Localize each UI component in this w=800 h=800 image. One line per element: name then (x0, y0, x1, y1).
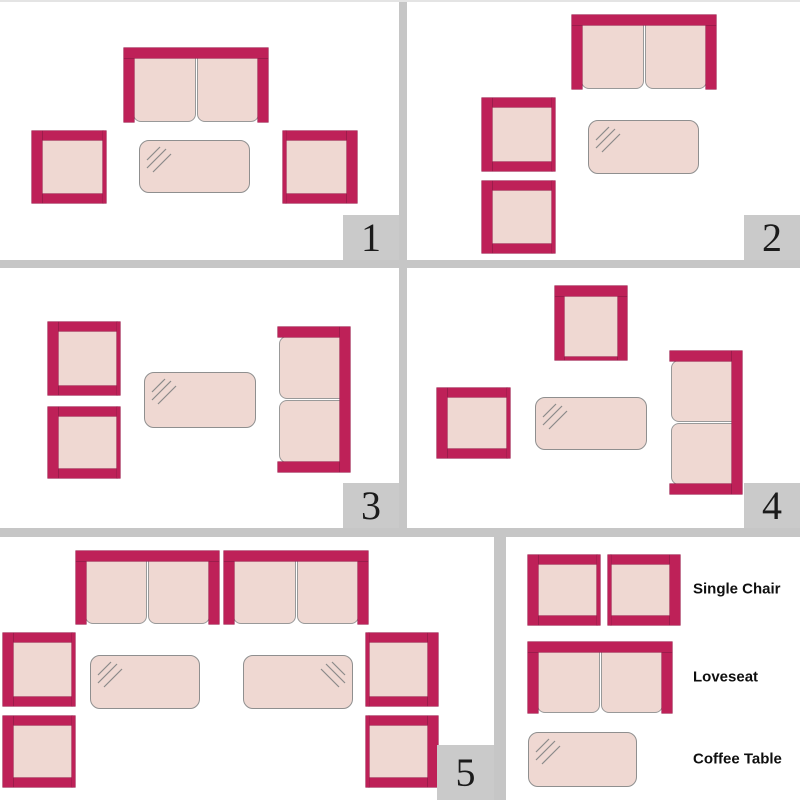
chair-front-edge (552, 181, 555, 253)
chair-arm (448, 449, 507, 458)
chair-arm (59, 407, 117, 416)
loveseat-arm (278, 462, 339, 472)
chair-front-edge (366, 716, 369, 787)
chair-front-edge (72, 716, 75, 787)
chair-arm (14, 697, 72, 706)
panel-number-badge: 2 (744, 215, 800, 260)
loveseat-arm (670, 484, 731, 494)
single-chair (555, 286, 627, 360)
separator (0, 260, 800, 268)
chair-back (528, 555, 538, 625)
chair-arm (611, 555, 669, 564)
single-chair (283, 131, 357, 203)
chair-front-edge (608, 555, 611, 625)
panel-number: 4 (762, 486, 782, 526)
single-chair (608, 555, 680, 625)
chair-front-edge (72, 633, 75, 706)
top-edge-line (0, 0, 800, 2)
loveseat-back (224, 551, 368, 561)
chair-arm (14, 716, 72, 725)
seat-cushion (368, 640, 430, 699)
chair-arm (369, 633, 427, 642)
loveseat (76, 551, 219, 624)
seat-cushion (56, 414, 118, 471)
single-chair (3, 633, 75, 706)
legend-label-single-chair: Single Chair (693, 581, 781, 598)
panel-number: 3 (361, 486, 381, 526)
chair-back (32, 131, 42, 203)
chair-arm (369, 697, 427, 706)
loveseat-arm (358, 562, 368, 624)
loveseat (528, 642, 672, 713)
separator (399, 0, 407, 260)
chair-front-edge (103, 131, 106, 203)
single-chair (48, 407, 120, 478)
furniture-layout-diagram: 1 2 3 4 5 Single Chair Loveseat Coffee T… (0, 0, 800, 800)
loveseat-arm (528, 653, 538, 713)
loveseat-arm (258, 59, 268, 122)
coffee-table (90, 655, 200, 709)
seat-cushion (285, 138, 349, 196)
single-chair (32, 131, 106, 203)
panel-number: 5 (456, 753, 476, 793)
panel-number-badge: 3 (343, 483, 399, 528)
loveseat-back (572, 15, 716, 25)
loveseat (224, 551, 368, 624)
coffee-table (144, 372, 256, 428)
coffee-table (139, 140, 250, 193)
chair-back (3, 633, 13, 706)
seat-cushion (536, 562, 598, 618)
seat-cushion (279, 336, 342, 399)
single-chair (3, 716, 75, 787)
seat-cushion (133, 56, 196, 122)
chair-arm (59, 469, 117, 478)
chair-arm (59, 322, 117, 331)
chair-arm (539, 555, 597, 564)
legend-label-loveseat: Loveseat (693, 669, 758, 686)
seat-cushion (297, 559, 360, 624)
separator (399, 268, 407, 528)
chair-arm (493, 244, 552, 253)
chair-arm (618, 297, 627, 360)
seat-cushion (445, 395, 508, 451)
glass-reflection-icon (145, 145, 175, 175)
loveseat-back (732, 351, 742, 494)
chair-front-edge (366, 633, 369, 706)
chair-back (347, 131, 357, 203)
panel-number: 1 (361, 218, 381, 258)
loveseat-arm (670, 351, 731, 361)
loveseat-arm (706, 26, 716, 89)
seat-cushion (40, 138, 104, 196)
chair-arm (286, 194, 346, 203)
seat-cushion (671, 360, 734, 422)
chair-arm (59, 386, 117, 395)
chair-front-edge (283, 131, 286, 203)
seat-cushion (368, 723, 430, 780)
chair-back (3, 716, 13, 787)
chair-back (428, 633, 438, 706)
single-chair (528, 555, 600, 625)
layout-panel-5: 5 (0, 537, 494, 800)
chair-front-edge (117, 407, 120, 478)
loveseat-arm (209, 562, 219, 624)
chair-front-edge (597, 555, 600, 625)
seat-cushion (537, 650, 600, 713)
single-chair (48, 322, 120, 395)
seat-cushion (11, 723, 73, 780)
legend-label-coffee-table: Coffee Table (693, 751, 782, 768)
chair-arm (493, 162, 552, 171)
chair-arm (369, 716, 427, 725)
glass-reflection-icon (534, 737, 564, 767)
panel-number-badge: 5 (437, 745, 494, 800)
layout-panel-3: 3 (0, 268, 399, 528)
seat-cushion (671, 423, 734, 485)
glass-reflection-icon (594, 125, 624, 155)
layout-panel-2: 2 (407, 0, 800, 260)
panel-number-badge: 4 (744, 483, 800, 528)
chair-arm (43, 131, 103, 140)
seat-cushion (610, 562, 672, 618)
chair-arm (493, 181, 552, 190)
loveseat-back (528, 642, 672, 652)
coffee-table (588, 120, 699, 174)
single-chair (482, 181, 555, 253)
seat-cushion (233, 559, 296, 624)
panel-number-badge: 1 (343, 215, 399, 260)
chair-front-edge (565, 357, 617, 360)
chair-back (437, 388, 447, 458)
loveseat (572, 15, 716, 89)
loveseat (278, 327, 350, 472)
chair-back (48, 407, 58, 478)
panel-number: 2 (762, 218, 782, 258)
single-chair (482, 98, 555, 171)
seat-cushion (490, 105, 553, 164)
seat-cushion (490, 188, 553, 246)
single-chair (366, 633, 438, 706)
chair-back (555, 286, 627, 296)
loveseat-back (124, 48, 268, 58)
seat-cushion (645, 23, 708, 89)
seat-cushion (85, 559, 147, 624)
chair-front-edge (507, 388, 510, 458)
loveseat-arm (662, 653, 672, 713)
seat-cushion (197, 56, 260, 122)
chair-arm (43, 194, 103, 203)
coffee-table (528, 732, 637, 787)
chair-arm (286, 131, 346, 140)
loveseat-arm (572, 26, 582, 89)
loveseat-back (340, 327, 350, 472)
chair-front-edge (552, 98, 555, 171)
chair-arm (14, 633, 72, 642)
legend-panel: Single Chair Loveseat Coffee Table (506, 537, 800, 800)
seat-cushion (562, 294, 620, 358)
layout-panel-1: 1 (0, 0, 399, 260)
separator (0, 528, 800, 537)
glass-reflection-icon (541, 402, 571, 432)
coffee-table (535, 397, 647, 450)
seat-cushion (11, 640, 73, 699)
loveseat-back (76, 551, 219, 561)
seat-cushion (148, 559, 210, 624)
chair-arm (493, 98, 552, 107)
chair-arm (369, 778, 427, 787)
glass-reflection-icon (150, 377, 180, 407)
glass-reflection-icon (96, 660, 126, 690)
chair-back (482, 181, 492, 253)
single-chair (437, 388, 510, 458)
layout-panel-4: 4 (407, 268, 800, 528)
chair-back (48, 322, 58, 395)
chair-arm (539, 616, 597, 625)
coffee-table (243, 655, 353, 709)
seat-cushion (56, 329, 118, 388)
loveseat (670, 351, 742, 494)
loveseat-arm (224, 562, 234, 624)
chair-arm (448, 388, 507, 397)
loveseat (124, 48, 268, 122)
chair-back (482, 98, 492, 171)
chair-arm (611, 616, 669, 625)
chair-back (670, 555, 680, 625)
separator (494, 537, 506, 800)
chair-arm (555, 297, 564, 360)
chair-front-edge (117, 322, 120, 395)
loveseat-arm (278, 327, 339, 337)
loveseat-arm (124, 59, 134, 122)
glass-reflection-icon (317, 660, 347, 690)
loveseat-arm (76, 562, 86, 624)
seat-cushion (601, 650, 664, 713)
chair-arm (14, 778, 72, 787)
seat-cushion (279, 400, 342, 463)
seat-cushion (581, 23, 644, 89)
single-chair (366, 716, 438, 787)
